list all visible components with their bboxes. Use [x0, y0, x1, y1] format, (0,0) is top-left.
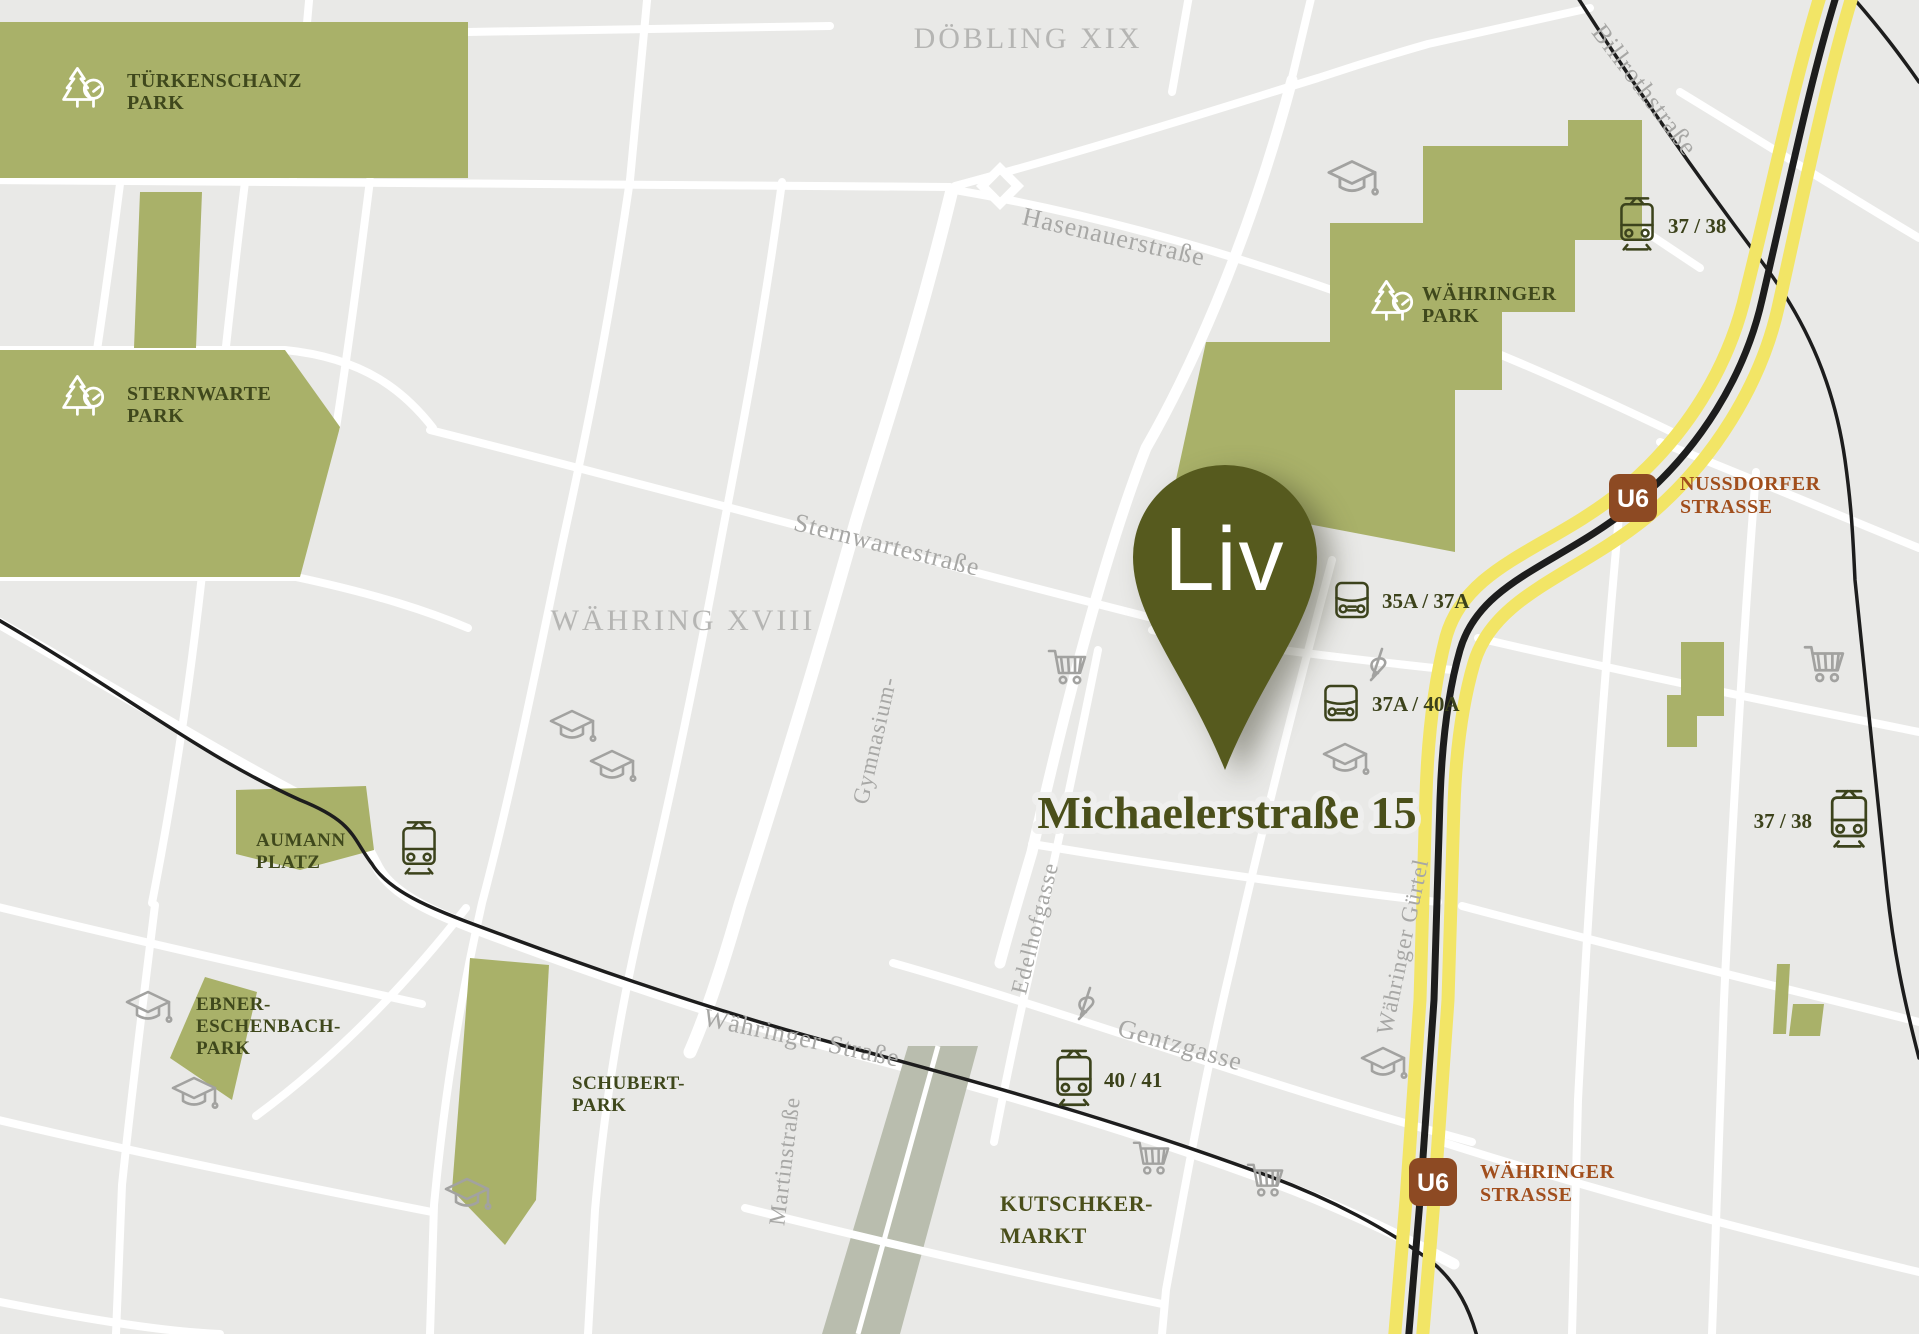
park-name-line: PARK	[1422, 305, 1479, 327]
market-name-line: MARKT	[1000, 1223, 1087, 1248]
park-name-line: EBNER-	[196, 994, 271, 1015]
park-name-line: PARK	[196, 1038, 250, 1059]
map-canvas: U6 NUSSDORFER STRASSE U6 WÄHRINGER STRAS…	[0, 0, 1919, 1334]
marker-brand-name: Liv	[1164, 510, 1285, 610]
bus-stop-label: 37A / 40A	[1372, 692, 1460, 716]
park-area-square-east	[1789, 1004, 1824, 1036]
tram-stop-label: 37 / 38	[1668, 214, 1726, 238]
station-name-line: WÄHRINGER	[1480, 1160, 1615, 1183]
park-name-line: PARK	[127, 92, 184, 114]
station-name-line: STRASSE	[1680, 496, 1772, 518]
map-screenshot: U6 NUSSDORFER STRASSE U6 WÄHRINGER STRAS…	[0, 0, 1919, 1334]
park-name-line: AUMANN	[256, 830, 346, 851]
district-label-waehring: WÄHRING XVIII	[551, 604, 816, 637]
park-name-line: ESCHENBACH-	[196, 1016, 341, 1037]
park-name-line: PARK	[572, 1095, 626, 1116]
market-name-line: KUTSCHKER-	[1000, 1191, 1153, 1216]
u6-badge-label: U6	[1617, 485, 1649, 513]
u6-badge-label: U6	[1417, 1169, 1449, 1197]
marker-address: Michaelerstraße 15	[1037, 787, 1416, 838]
park-name-line: PLATZ	[256, 852, 320, 873]
park-name-line: PARK	[127, 405, 184, 427]
bus-stop-label: 35A / 37A	[1382, 589, 1470, 613]
park-area-small-green	[134, 192, 202, 348]
park-name-line: TÜRKENSCHANZ	[127, 69, 302, 92]
district-label-doebling: DÖBLING XIX	[914, 22, 1143, 55]
station-name-line: NUSSDORFER	[1680, 473, 1821, 495]
park-name-line: SCHUBERT-	[572, 1073, 685, 1094]
park-name-line: WÄHRINGER	[1422, 282, 1557, 305]
tram-stop-label: 37 / 38	[1754, 809, 1812, 833]
station-name-line: STRASSE	[1480, 1184, 1572, 1206]
tram-stop-label: 40 / 41	[1104, 1068, 1162, 1092]
park-name-line: STERNWARTE	[127, 383, 271, 405]
